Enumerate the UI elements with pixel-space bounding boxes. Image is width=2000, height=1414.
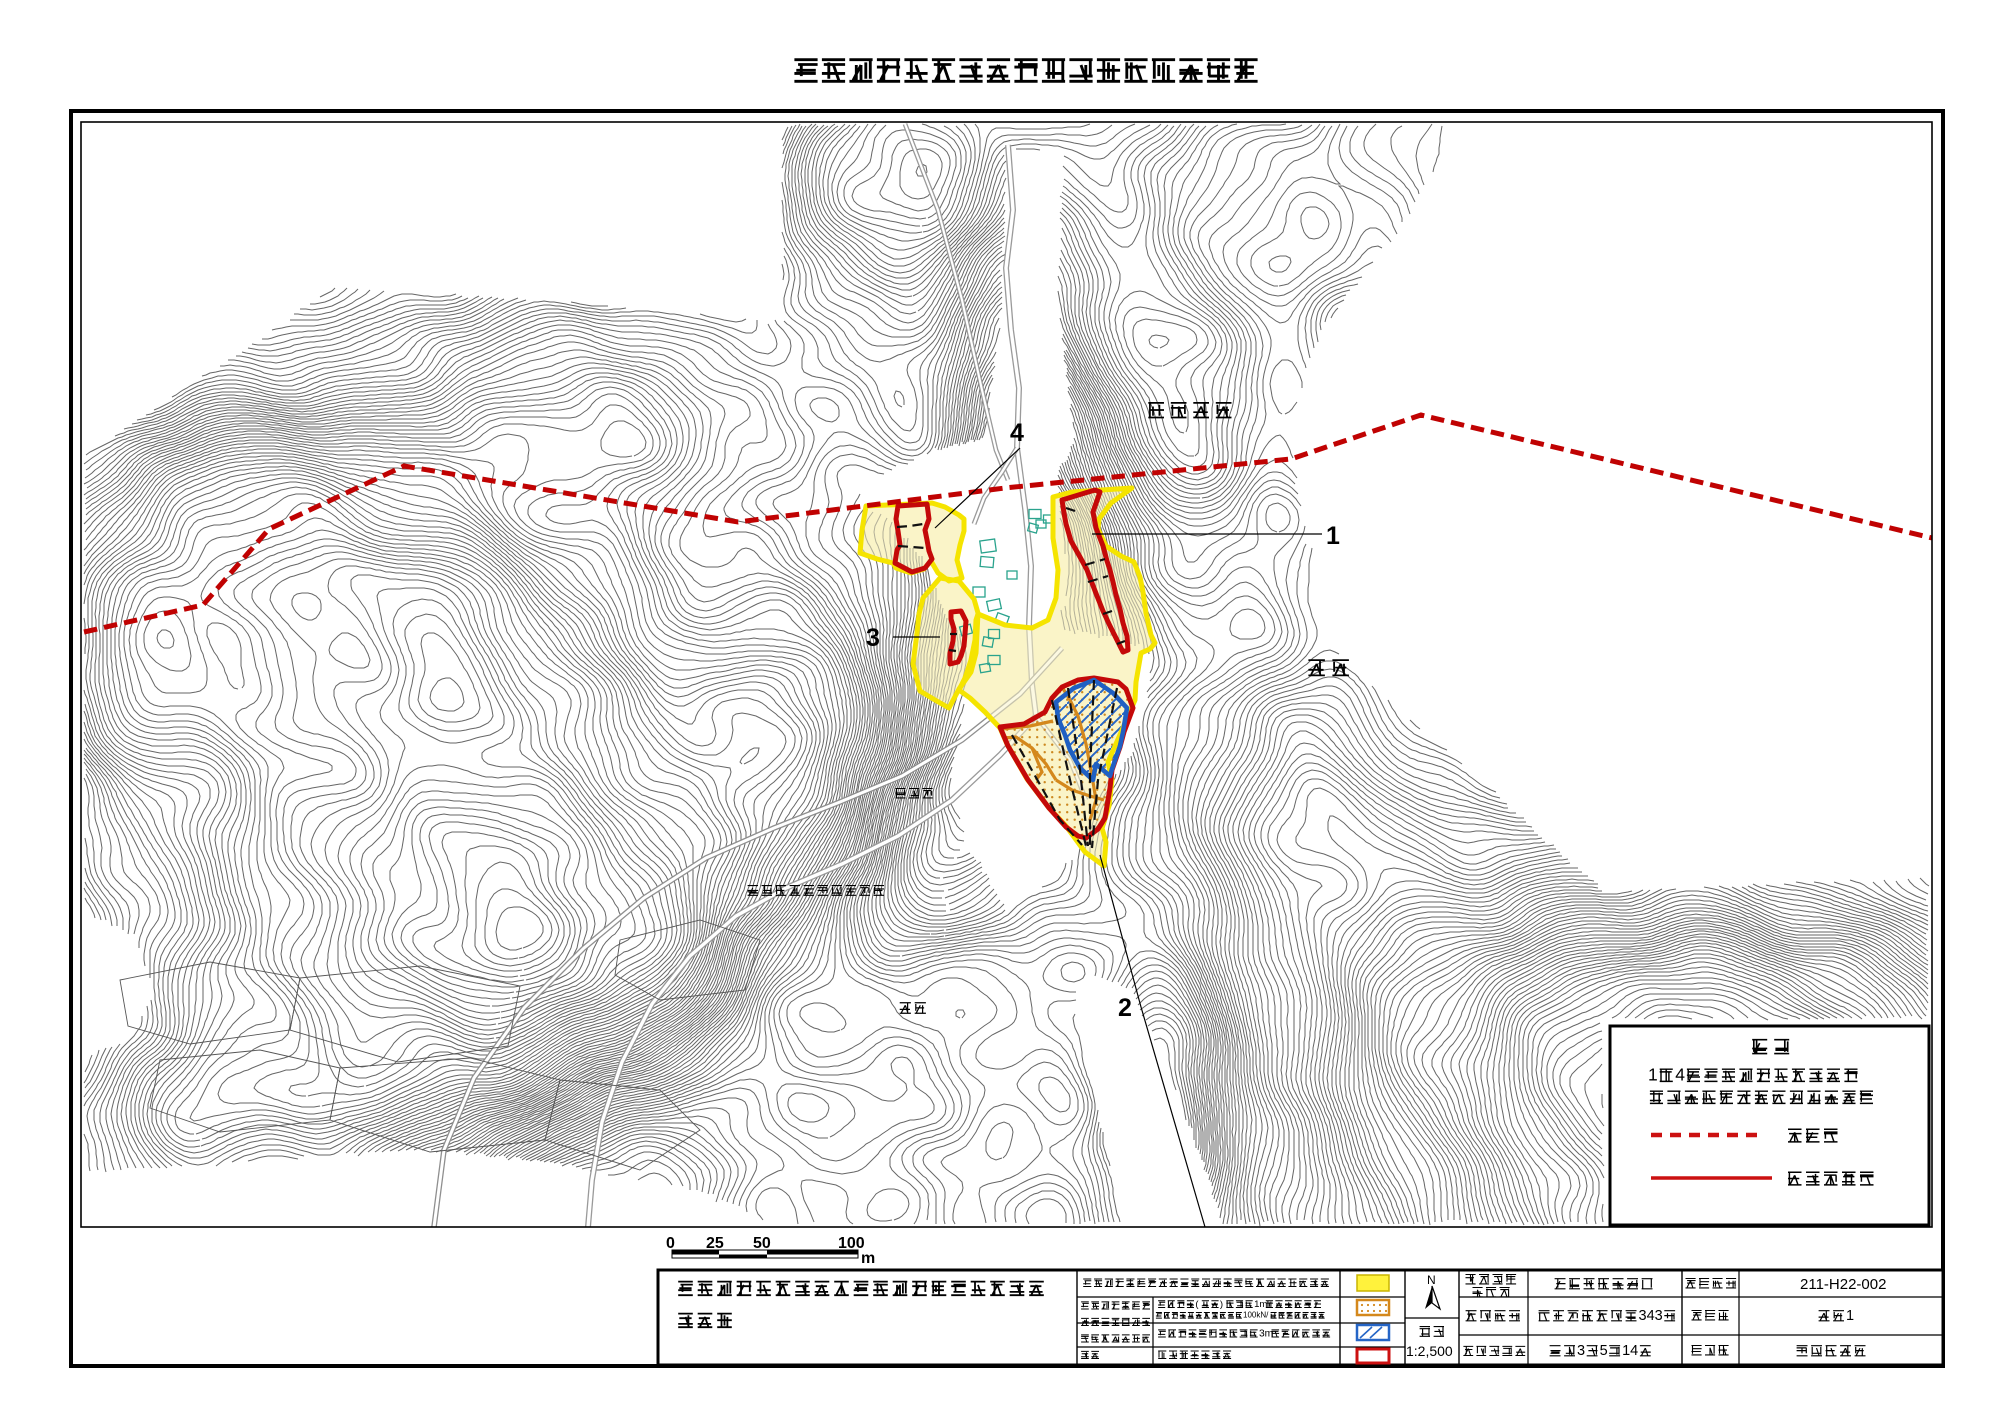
svg-text:4: 4 — [1010, 419, 1024, 447]
svg-text:3: 3 — [866, 624, 880, 652]
svg-text:N: N — [1427, 1273, 1436, 1287]
svg-text:25: 25 — [706, 1235, 724, 1252]
svg-text:3m: 3m — [1259, 1328, 1273, 1339]
svg-text:1:2,500: 1:2,500 — [1406, 1343, 1453, 1359]
svg-text:): ) — [1220, 1299, 1223, 1310]
svg-text:100kN/: 100kN/ — [1243, 1311, 1269, 1320]
svg-text:2: 2 — [1118, 994, 1132, 1022]
svg-text:3: 3 — [1577, 1343, 1585, 1359]
svg-text:1: 1 — [1846, 1308, 1854, 1324]
svg-text:1: 1 — [1648, 1064, 1658, 1084]
svg-text:4: 4 — [1675, 1064, 1685, 1084]
svg-text:50: 50 — [753, 1235, 771, 1252]
svg-text:211-H22-002: 211-H22-002 — [1800, 1276, 1886, 1293]
svg-text:5: 5 — [1600, 1343, 1608, 1359]
svg-text:0: 0 — [666, 1235, 675, 1252]
svg-text:m: m — [861, 1250, 875, 1267]
svg-text:1: 1 — [1326, 522, 1340, 550]
svg-text:14: 14 — [1622, 1343, 1638, 1359]
svg-text:1m: 1m — [1254, 1299, 1267, 1310]
svg-text:343: 343 — [1639, 1308, 1663, 1324]
